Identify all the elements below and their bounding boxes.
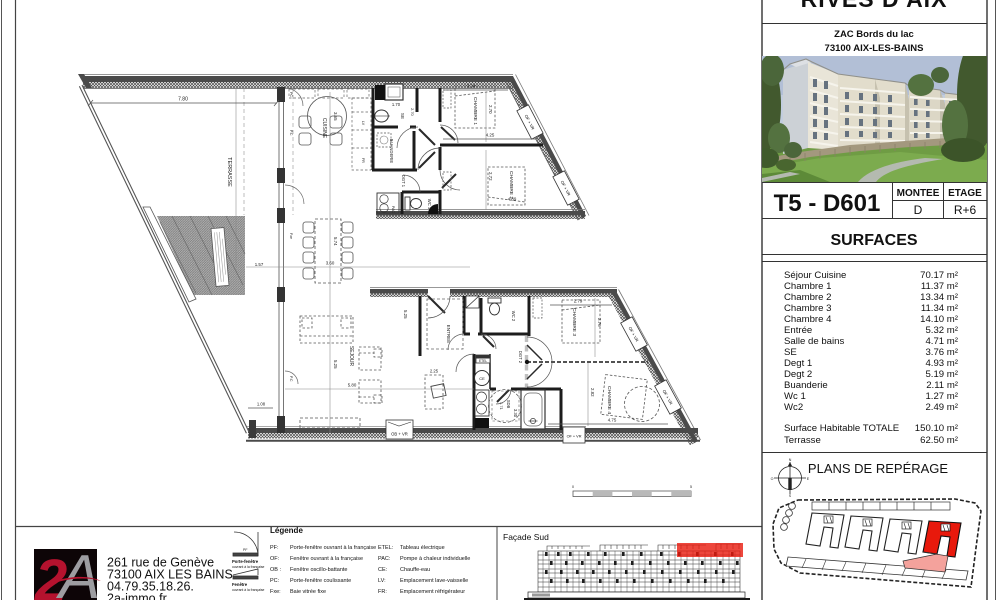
svg-text:WC 2: WC 2	[511, 311, 516, 322]
svg-text:0: 0	[572, 484, 575, 489]
svg-text:Fxe: Fxe	[289, 233, 293, 239]
svg-text:P.C: P.C	[289, 376, 293, 382]
svg-text:PC: PC	[289, 92, 293, 97]
svg-text:ENTREE: ENTREE	[446, 325, 451, 344]
svg-text:CHAMBRE 4: CHAMBRE 4	[606, 386, 612, 414]
svg-text:DGT 1: DGT 1	[401, 175, 406, 188]
svg-text:5: 5	[690, 484, 693, 489]
svg-text:CHAMBRE 1: CHAMBRE 1	[472, 97, 478, 125]
svg-text:BUANDERIE: BUANDERIE	[389, 139, 394, 164]
svg-text:WC 1: WC 1	[427, 199, 432, 210]
svg-text:SDB: SDB	[506, 400, 511, 409]
svg-text:DGT 2: DGT 2	[518, 351, 523, 364]
svg-text:CHAMBRE 3: CHAMBRE 3	[571, 308, 577, 336]
svg-text:SEJOUR: SEJOUR	[348, 346, 354, 367]
svg-text:CHAMBRE 2: CHAMBRE 2	[508, 171, 514, 199]
svg-text:TERRASSE: TERRASSE	[226, 157, 232, 187]
svg-text:CUISINE: CUISINE	[321, 118, 327, 139]
svg-text:P.C: P.C	[289, 130, 293, 136]
svg-text:SE: SE	[400, 113, 405, 119]
